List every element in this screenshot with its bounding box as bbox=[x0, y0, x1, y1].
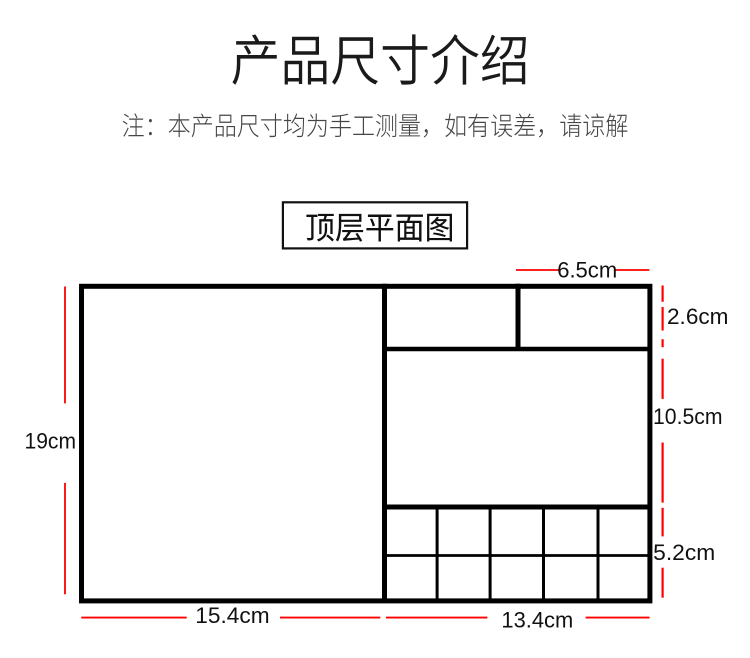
svg-text:10.5cm: 10.5cm bbox=[653, 404, 723, 429]
svg-text:5.2cm: 5.2cm bbox=[653, 540, 715, 565]
svg-text:6.5cm: 6.5cm bbox=[557, 258, 617, 283]
svg-text:2.6cm: 2.6cm bbox=[667, 304, 729, 329]
svg-text:19cm: 19cm bbox=[25, 429, 77, 454]
svg-text:13.4cm: 13.4cm bbox=[501, 607, 573, 632]
svg-text:15.4cm: 15.4cm bbox=[195, 603, 269, 628]
